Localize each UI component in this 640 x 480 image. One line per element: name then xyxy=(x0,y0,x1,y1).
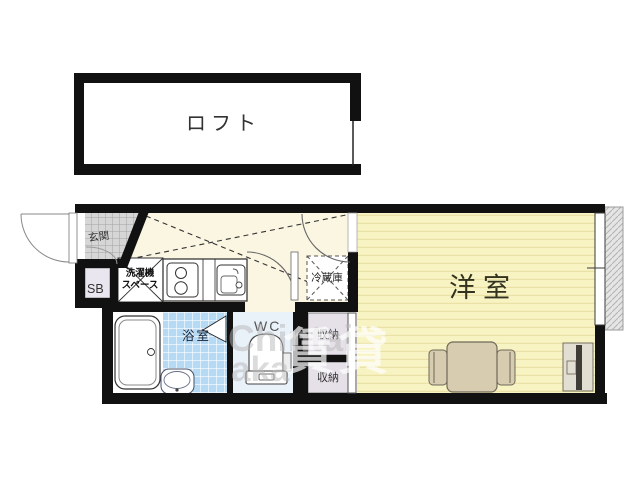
washbasin-faucet xyxy=(175,388,178,391)
washroom-door-leaf xyxy=(291,252,298,300)
wall-bathroom-left xyxy=(102,298,113,404)
laundry-label-line1: 洗濯機 xyxy=(126,267,155,279)
wall-water-area-top-left xyxy=(102,302,245,312)
shoebox-label: SB xyxy=(87,282,104,296)
watermark-text-bottom: aka xyxy=(231,350,290,389)
kitchen-counter xyxy=(163,259,247,301)
wall-bottom xyxy=(102,393,607,404)
stove-burner-1 xyxy=(176,268,187,279)
loft-wall-bottom xyxy=(74,164,361,175)
refrigerator-label: 冷蔵庫 xyxy=(311,271,343,284)
tv-pedestal xyxy=(567,361,576,374)
entrance-label: 玄関 xyxy=(87,229,109,244)
wall-right-lower xyxy=(595,325,605,404)
loft-wall-left xyxy=(74,73,84,175)
entrance-door-swing-arc xyxy=(21,214,69,262)
watermark-kanji: 賃貸 xyxy=(283,324,392,380)
loft-wall-right xyxy=(350,73,361,121)
washroom-doorway-floor xyxy=(245,302,295,312)
loft-wall-top xyxy=(74,73,361,83)
wall-top xyxy=(75,204,605,213)
sink-faucet xyxy=(236,282,242,288)
room-doorway-opening xyxy=(348,213,357,252)
chair-right xyxy=(497,350,515,385)
chair-left xyxy=(429,350,447,385)
tv-screen xyxy=(576,345,582,390)
wall-room-left xyxy=(348,252,358,312)
laundry-label-line2: スペース xyxy=(122,280,159,291)
loft-label: ロフト xyxy=(186,113,261,135)
floorplan-svg: ロフト xyxy=(0,0,640,480)
dining-table xyxy=(447,342,497,392)
furniture xyxy=(429,342,593,392)
right-window xyxy=(595,213,605,325)
balcony xyxy=(605,207,623,330)
sink-basin xyxy=(221,276,237,293)
western-room-label: 洋室 xyxy=(449,273,517,303)
stove-burner-2 xyxy=(175,282,187,294)
bathroom-label: 浴室 xyxy=(182,328,211,343)
bathtub-drain-knob xyxy=(148,349,155,356)
watermark: Chintai aka 賃貸 xyxy=(228,318,392,389)
loft-room: ロフト xyxy=(74,73,361,175)
bathtub xyxy=(115,316,160,389)
entrance-door-leaf xyxy=(69,213,77,263)
washbasin xyxy=(161,369,194,394)
floorplan-canvas: ロフト xyxy=(0,0,640,480)
